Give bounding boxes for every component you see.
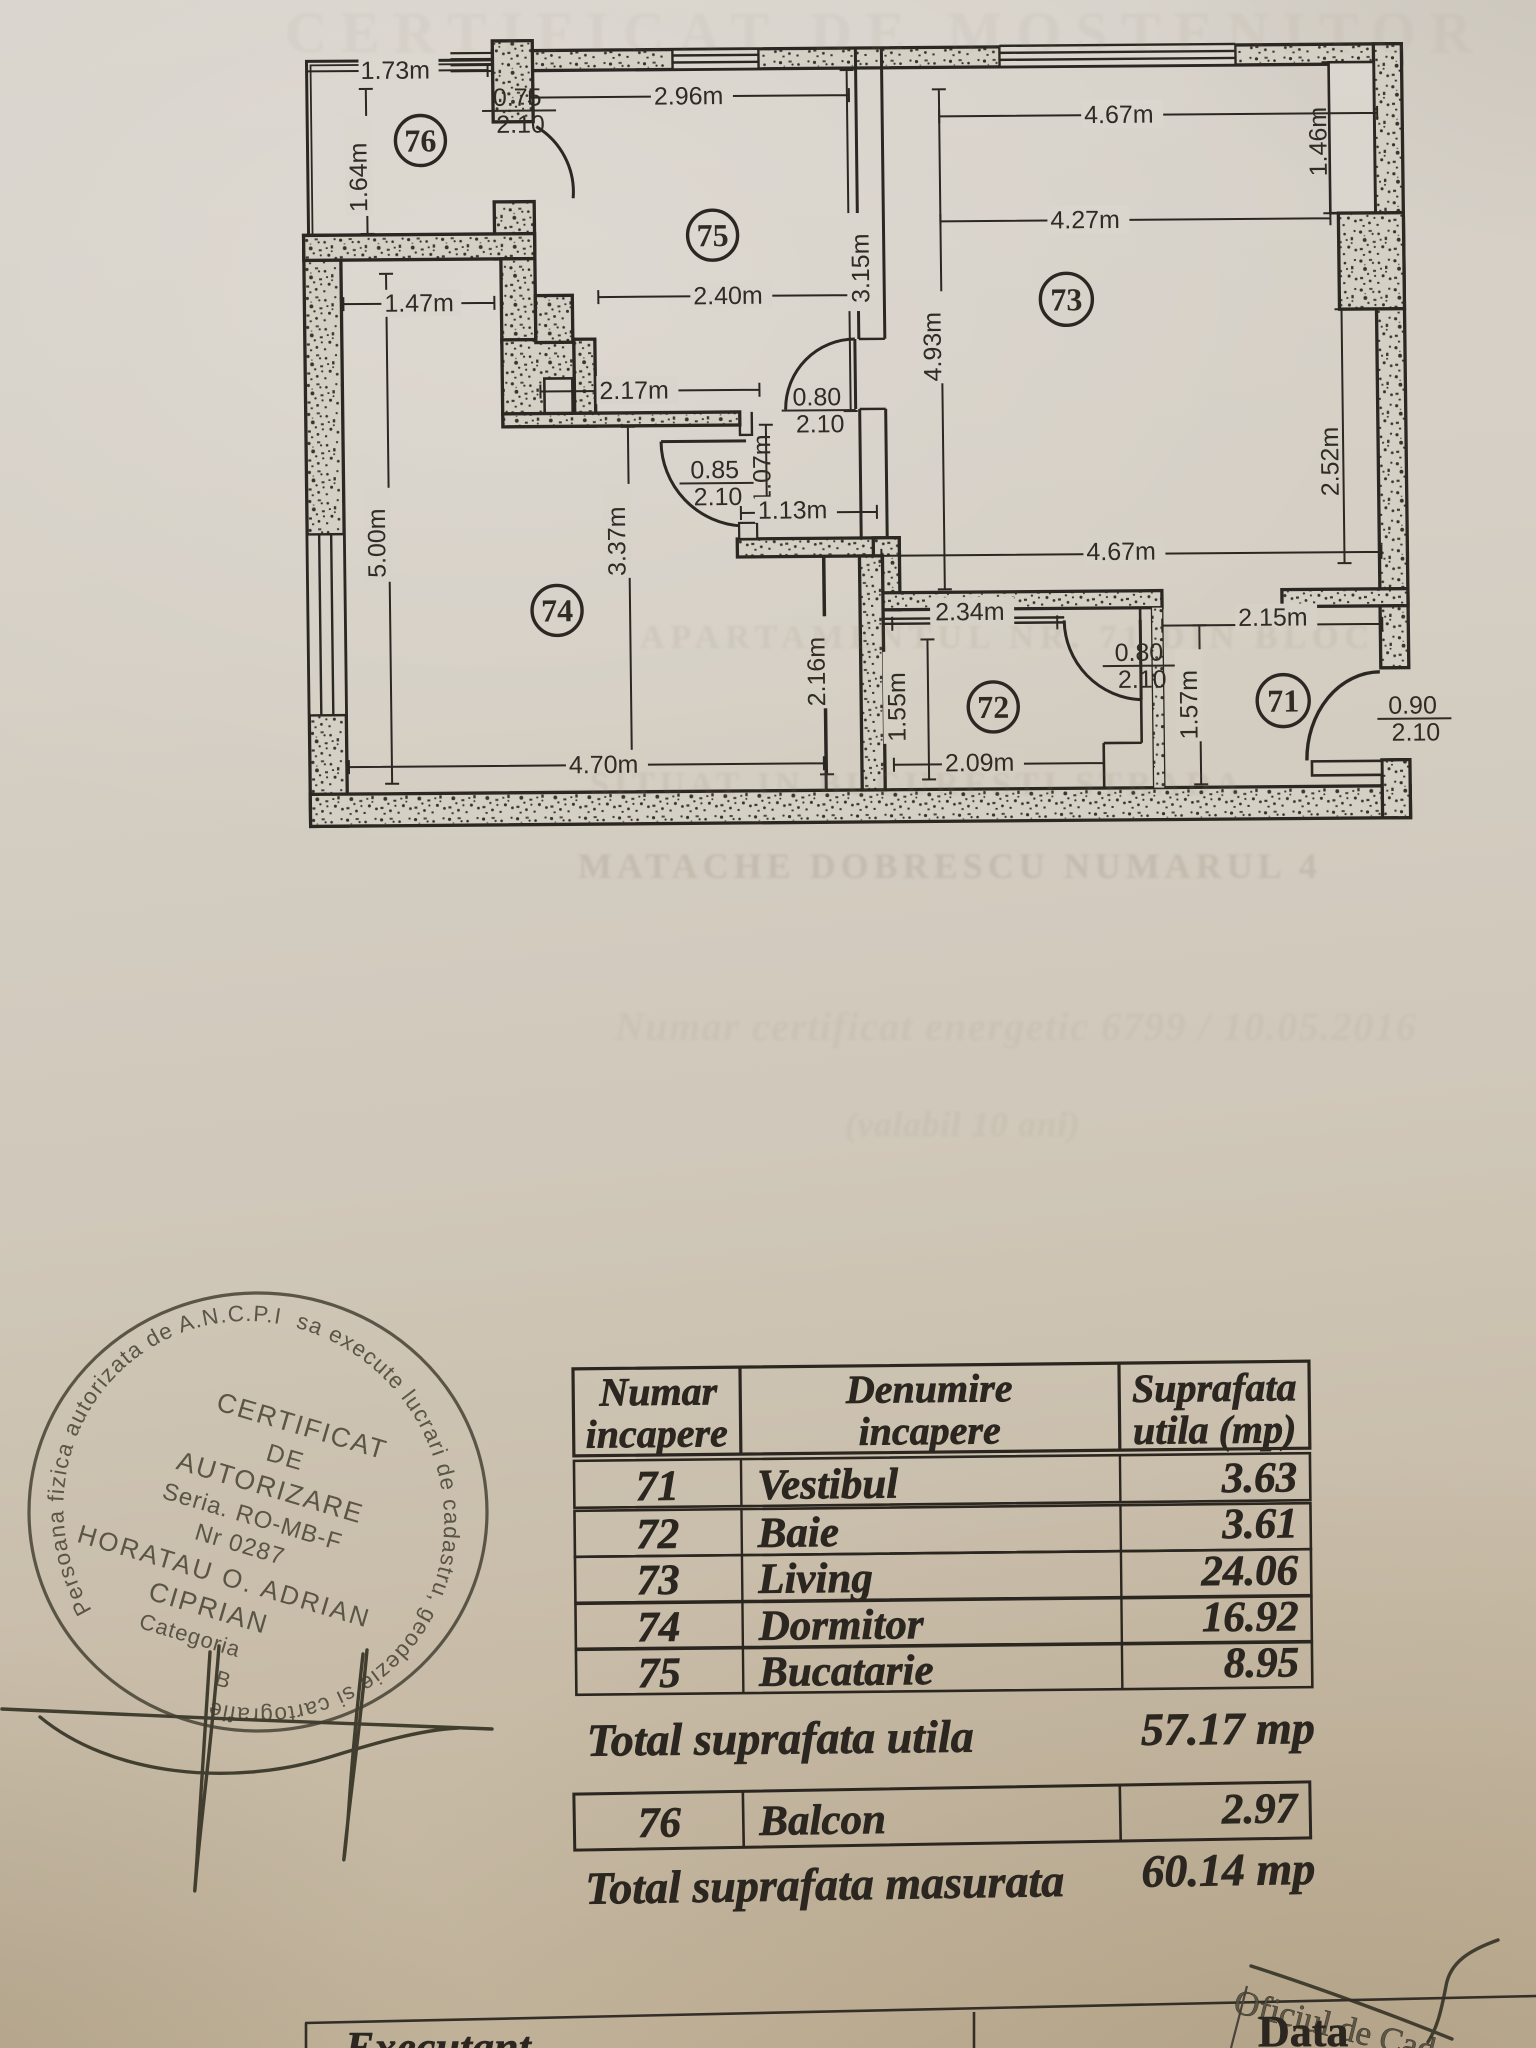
svg-text:2.10: 2.10	[1391, 718, 1440, 746]
svg-text:60.14 mp: 60.14 mp	[1141, 1843, 1316, 1897]
svg-text:3.63: 3.63	[1221, 1454, 1298, 1502]
svg-text:75: 75	[696, 217, 728, 253]
svg-text:utila (mp): utila (mp)	[1133, 1406, 1297, 1453]
svg-text:0.90: 0.90	[1388, 691, 1437, 719]
svg-text:3.15m: 3.15m	[847, 233, 876, 303]
svg-text:76: 76	[637, 1799, 681, 1847]
svg-text:1.64m: 1.64m	[344, 142, 373, 212]
svg-text:1.13m: 1.13m	[758, 496, 828, 525]
svg-text:3.61: 3.61	[1221, 1500, 1298, 1548]
svg-text:(valabil 10 ani): (valabil 10 ani)	[845, 1105, 1081, 1144]
svg-text:Numar certificat energetic 679: Numar certificat energetic 6799 / 10.05.…	[614, 1004, 1418, 1049]
svg-text:APARTAMENTUL NR. 71 DIN BLOC: APARTAMENTUL NR. 71 DIN BLOC	[640, 619, 1375, 656]
svg-text:Numar: Numar	[598, 1368, 718, 1414]
svg-text:71: 71	[1267, 682, 1299, 718]
svg-text:Suprafata: Suprafata	[1132, 1364, 1297, 1411]
svg-text:Data: Data	[1258, 2007, 1348, 2048]
svg-text:1.07m: 1.07m	[748, 434, 777, 504]
svg-text:16.92: 16.92	[1202, 1593, 1299, 1641]
svg-text:MATACHE DOBRESCU NUMARUL 4: MATACHE DOBRESCU NUMARUL 4	[578, 846, 1322, 886]
svg-text:1.46m: 1.46m	[1304, 107, 1333, 177]
svg-text:4.27m: 4.27m	[1050, 206, 1120, 235]
svg-text:Vestibul: Vestibul	[757, 1460, 899, 1508]
svg-text:4.67m: 4.67m	[1084, 101, 1154, 130]
svg-text:Executant: Executant	[344, 2023, 533, 2048]
svg-text:CERTIFICAT DE MOSTENITOR: CERTIFICAT DE MOSTENITOR	[285, 0, 1486, 65]
svg-text:2.10: 2.10	[1118, 666, 1167, 694]
svg-text:2.52m: 2.52m	[1316, 427, 1345, 497]
svg-text:incapere: incapere	[858, 1407, 1001, 1453]
svg-text:2.96m: 2.96m	[654, 82, 724, 111]
svg-text:2.97: 2.97	[1221, 1785, 1300, 1833]
svg-text:1.57m: 1.57m	[1175, 670, 1204, 740]
svg-text:2.40m: 2.40m	[693, 282, 763, 311]
svg-text:73: 73	[636, 1557, 679, 1604]
svg-text:72: 72	[636, 1511, 679, 1558]
svg-text:1.55m: 1.55m	[883, 672, 912, 742]
svg-text:Baie: Baie	[756, 1509, 839, 1557]
svg-text:incapere: incapere	[585, 1410, 728, 1456]
svg-text:Total suprafata masurata: Total suprafata masurata	[585, 1855, 1065, 1914]
svg-text:8.95: 8.95	[1224, 1639, 1300, 1687]
svg-text:0.85: 0.85	[690, 456, 739, 484]
svg-text:3.37m: 3.37m	[603, 506, 632, 576]
svg-text:73: 73	[1050, 281, 1082, 317]
svg-text:72: 72	[977, 689, 1009, 725]
svg-text:0.75: 0.75	[493, 84, 542, 112]
svg-text:Living: Living	[757, 1555, 873, 1603]
svg-text:2.10: 2.10	[694, 483, 743, 511]
svg-text:2.17m: 2.17m	[599, 377, 669, 406]
svg-text:4.93m: 4.93m	[919, 312, 948, 382]
svg-text:57.17 mp: 57.17 mp	[1141, 1702, 1315, 1755]
svg-text:2.10: 2.10	[796, 410, 845, 438]
svg-text:Bucatarie: Bucatarie	[758, 1647, 934, 1696]
svg-text:75: 75	[637, 1650, 680, 1697]
svg-text:Dormitor: Dormitor	[757, 1601, 925, 1650]
svg-text:Balcon: Balcon	[758, 1796, 886, 1845]
svg-text:SITUAT IN BUCURESTI STRADA: SITUAT IN BUCURESTI STRADA	[590, 766, 1245, 803]
svg-text:74: 74	[541, 592, 573, 628]
svg-text:Total suprafata utila: Total suprafata utila	[587, 1711, 974, 1766]
svg-text:0.80: 0.80	[792, 383, 841, 411]
svg-text:2.10: 2.10	[496, 111, 545, 139]
svg-text:76: 76	[404, 122, 436, 158]
svg-text:Denumire: Denumire	[845, 1365, 1013, 1412]
svg-text:5.00m: 5.00m	[363, 508, 392, 578]
svg-text:24.06: 24.06	[1200, 1547, 1299, 1595]
svg-text:4.67m: 4.67m	[1086, 538, 1156, 567]
svg-text:71: 71	[635, 1463, 678, 1510]
svg-text:1.47m: 1.47m	[384, 289, 454, 318]
svg-text:74: 74	[637, 1604, 680, 1651]
